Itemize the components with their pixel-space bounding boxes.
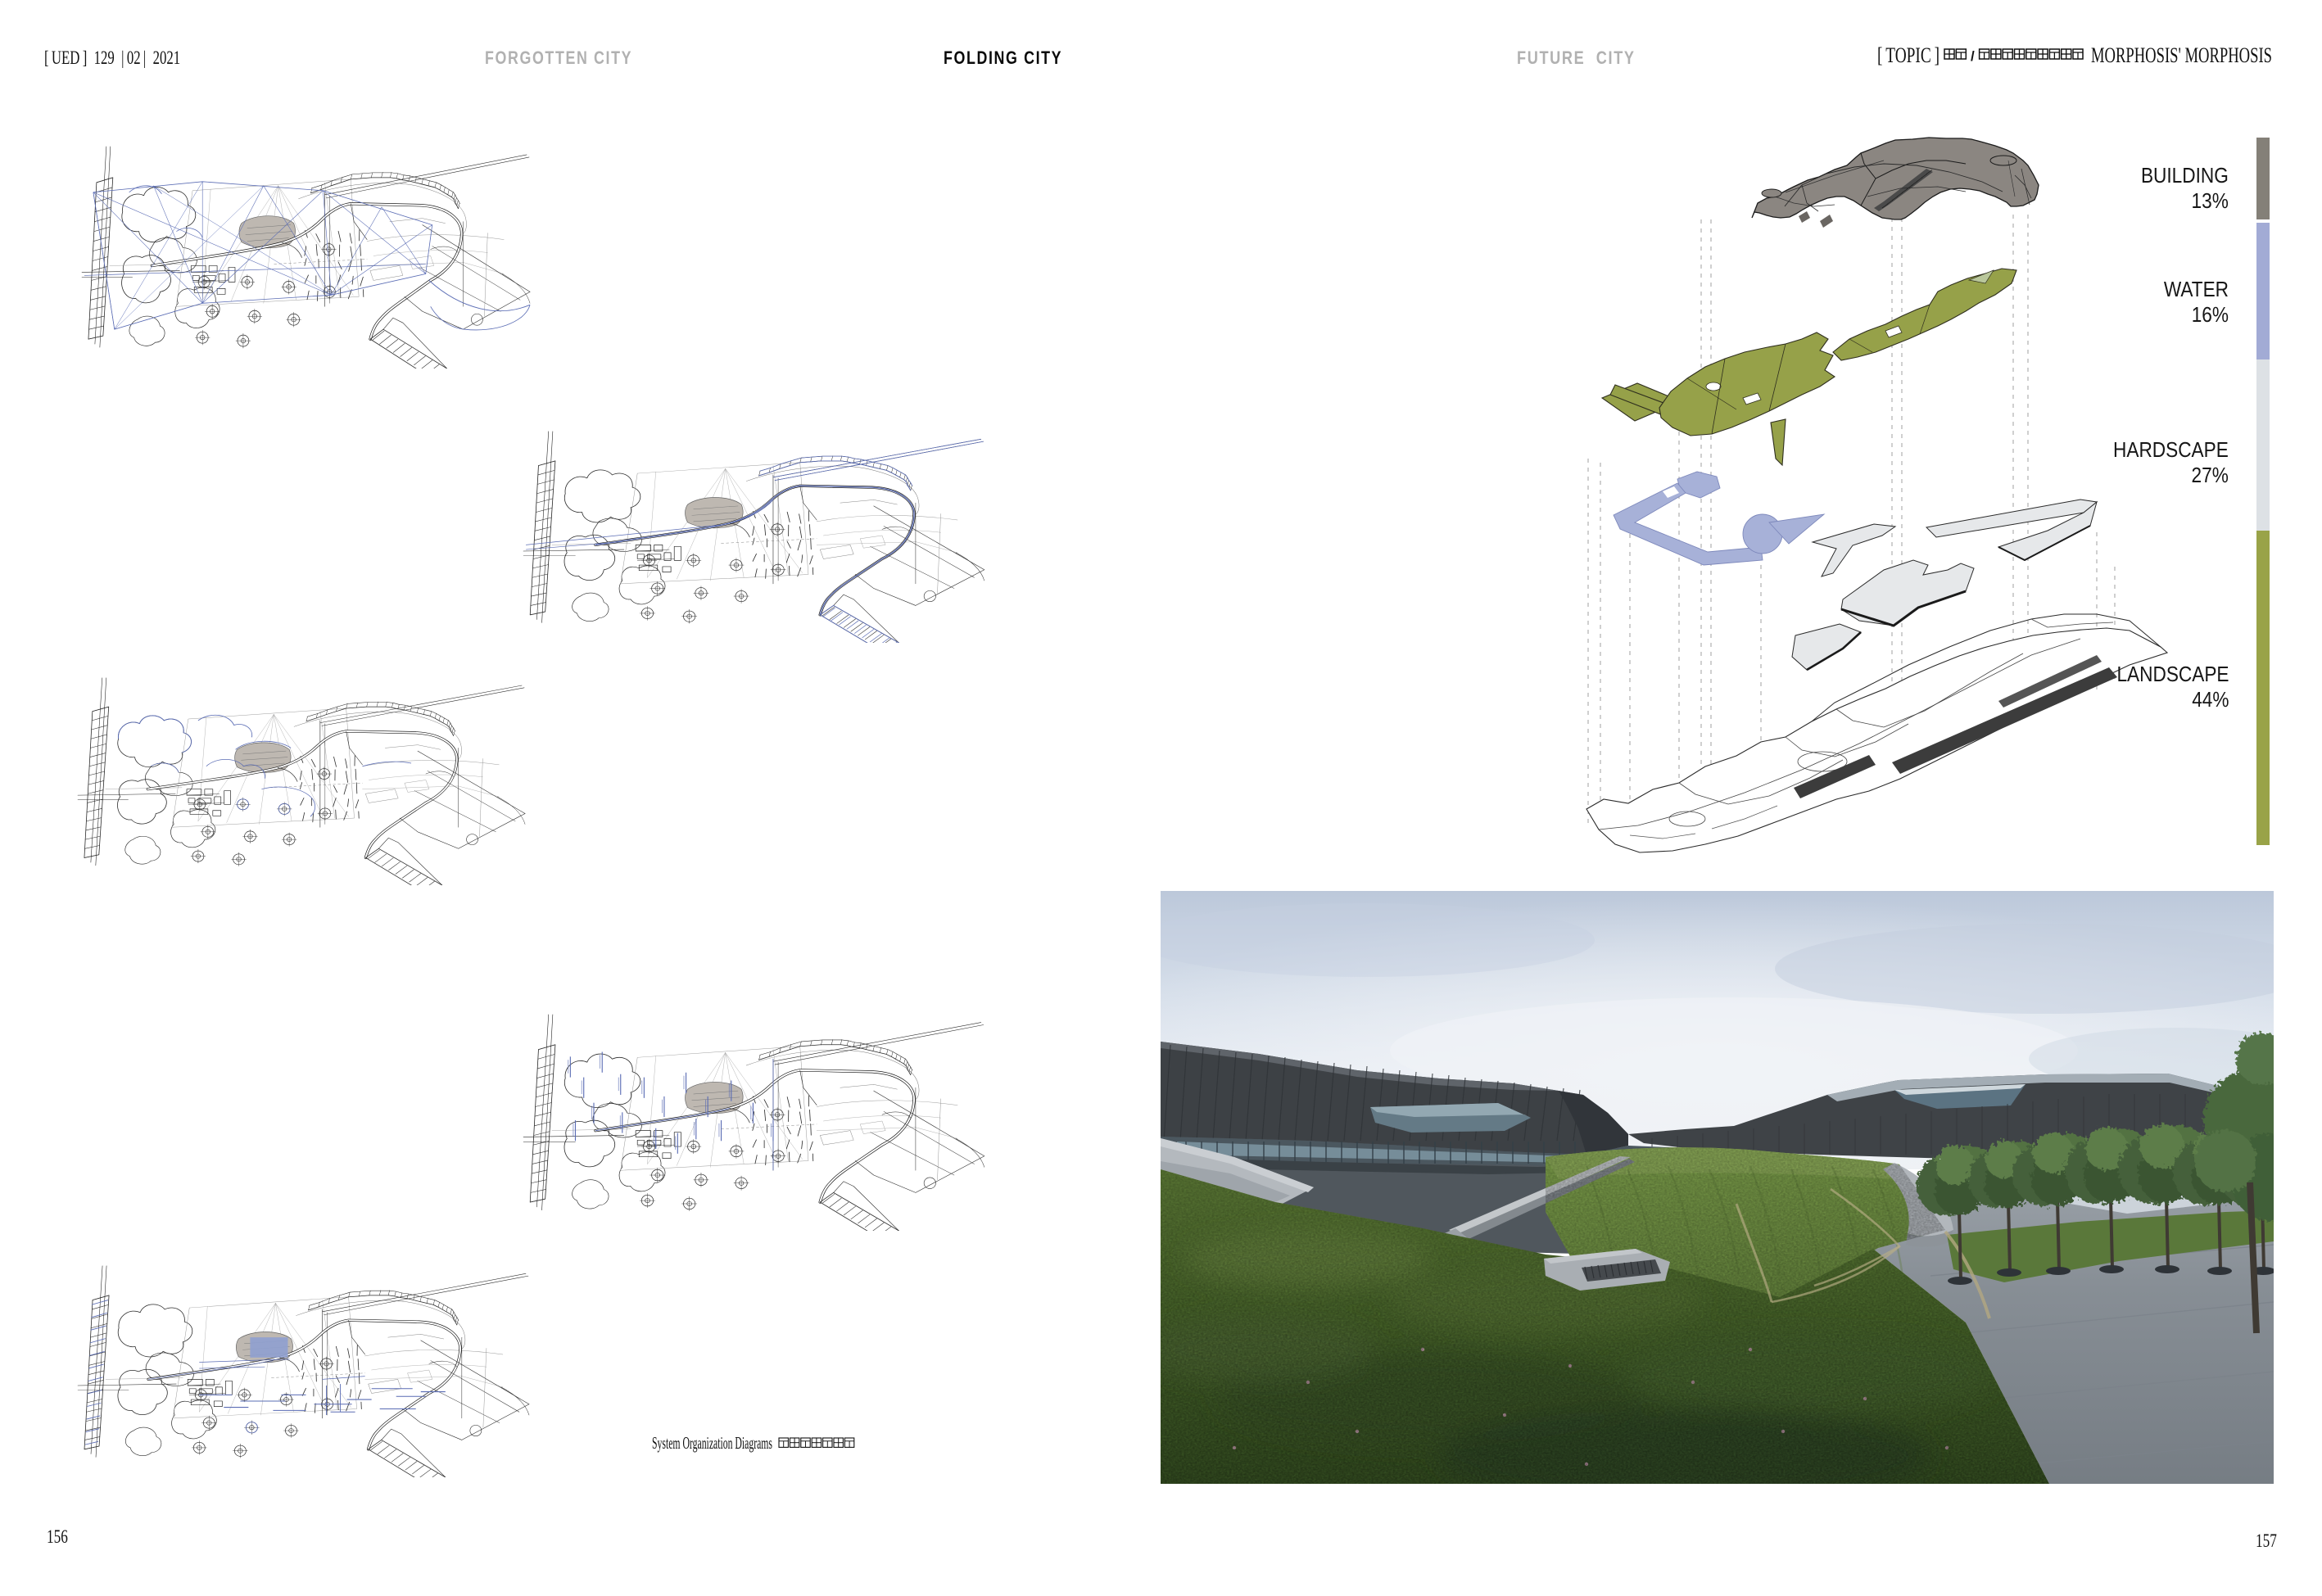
svg-text:/: / [1971,48,1975,64]
svg-text:System Organization Diagrams: System Organization Diagrams [652,1433,772,1453]
svg-text:MORPHOSIS' MORPHOSIS: MORPHOSIS' MORPHOSIS [2091,43,2272,67]
svg-text:[ TOPIC ]: [ TOPIC ] [1877,43,1940,67]
